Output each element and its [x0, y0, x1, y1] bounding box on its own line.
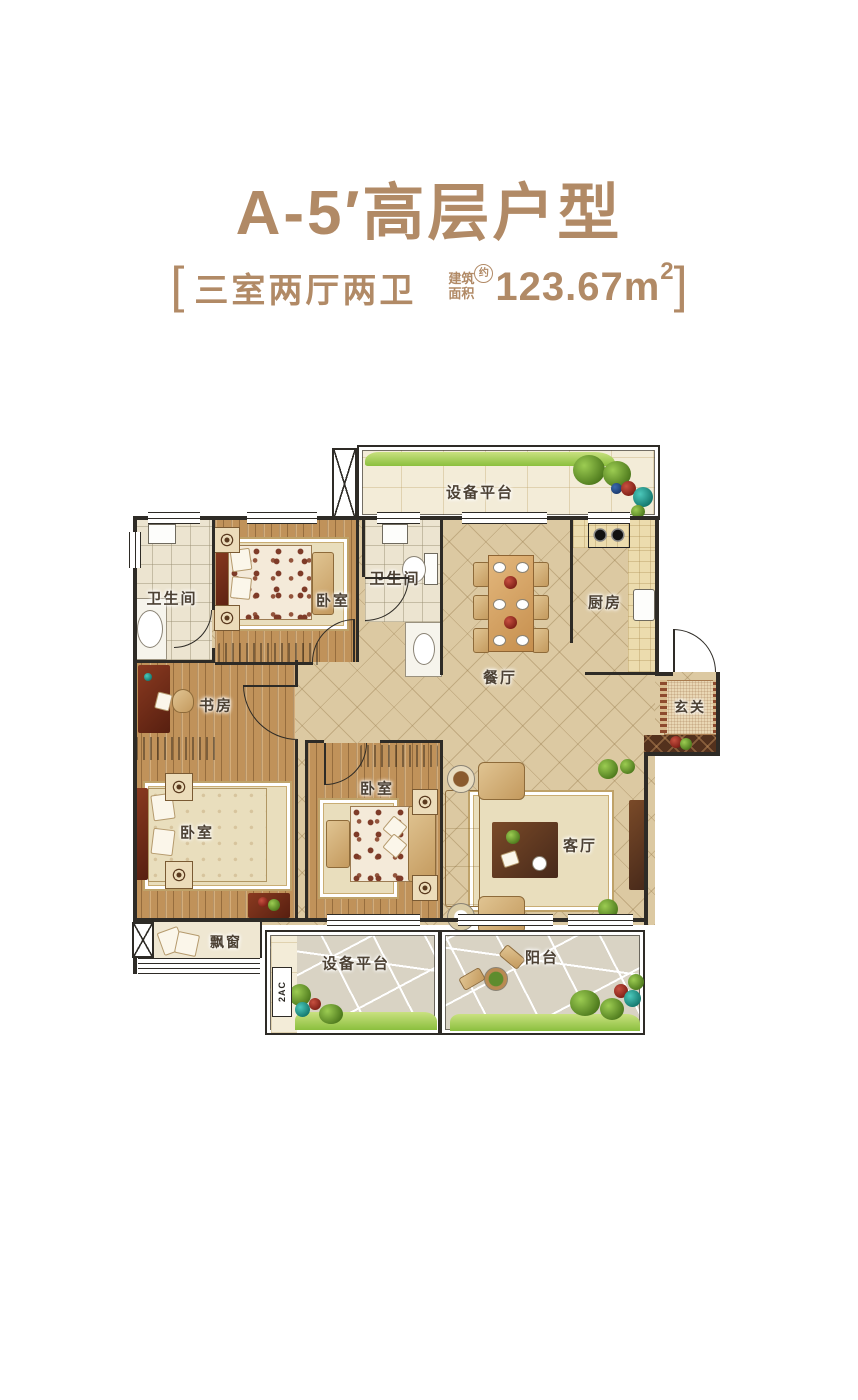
plant-pot-teal — [295, 1002, 310, 1017]
wall-bath2-right — [440, 520, 443, 675]
page: { "header": { "title": "A-5′高层户型", "acce… — [0, 0, 858, 1400]
wall-bath1-bottom — [133, 660, 212, 663]
coffee-table — [492, 822, 558, 878]
centerpiece-flowers — [504, 616, 517, 629]
corner-plant — [620, 759, 635, 774]
desk-chair — [172, 689, 194, 713]
side-table — [447, 765, 475, 793]
area-prefix-line1: 建筑 — [448, 271, 474, 286]
window-living-bottom-2 — [568, 914, 633, 926]
room-label-equip-top: 设备平台 — [446, 482, 514, 503]
pillow — [150, 828, 175, 856]
plate — [516, 562, 529, 573]
wall-entry-right — [716, 672, 720, 756]
red-flowers — [258, 897, 268, 907]
magazine — [500, 850, 520, 868]
dining-chairs-right — [532, 562, 547, 652]
balcony-chair — [458, 967, 486, 991]
plate — [493, 599, 506, 610]
wall-entry-bottom — [648, 752, 720, 756]
wall-bedmid-top-a — [305, 740, 324, 743]
room-label-bed-left: 卧室 — [180, 822, 214, 843]
plant-pot-teal — [633, 487, 653, 507]
wall-left — [133, 516, 137, 974]
dresser-bedroom-mid — [360, 745, 438, 767]
room-label-study: 书房 — [199, 695, 233, 716]
dining-chairs-left — [473, 562, 488, 652]
armchair — [478, 762, 525, 800]
room-label-bay-window: 飘窗 — [210, 932, 242, 952]
wall-entry-top-stub — [659, 672, 673, 676]
wall-kitchen-left — [570, 520, 573, 643]
room-label-entry: 玄关 — [674, 697, 706, 717]
bracket-left: [ — [170, 260, 184, 310]
ac-label: 2AC — [277, 981, 287, 1002]
centerpiece-flowers — [504, 576, 517, 589]
bench-bedroom-mid — [326, 820, 350, 868]
kitchen-sink — [633, 589, 655, 621]
plate — [493, 635, 506, 646]
basin-2 — [413, 633, 435, 665]
area-prefix-line2: 面积 — [448, 286, 474, 301]
ac-dimension-box: 2AC — [272, 967, 292, 1017]
window-living-bottom-1 — [458, 914, 553, 926]
door-arc-entry — [673, 629, 716, 672]
washer-box — [148, 524, 176, 544]
nightstand — [214, 605, 240, 631]
spec-line: [ 三室两厅两卫 建筑 面积 约 123.67m 2 ] — [0, 262, 858, 312]
tray — [532, 856, 547, 871]
planter-box — [248, 893, 290, 918]
corner-plant — [598, 759, 618, 779]
window-dining-top — [462, 512, 547, 524]
wall-bedtop-right — [356, 520, 359, 662]
bracket-right: ] — [674, 260, 688, 310]
palm-plant — [573, 455, 605, 485]
stove — [588, 522, 630, 548]
dining-table — [488, 555, 534, 652]
plate — [516, 599, 529, 610]
floor-plan: 设备平台 厨房 卫生间 卫生间 卧室 — [128, 437, 745, 1040]
plate — [516, 635, 529, 646]
headboard-mid — [408, 806, 436, 882]
pillow — [230, 576, 252, 600]
table-plant — [506, 830, 520, 844]
nightstand — [412, 789, 438, 815]
wall-bedtop-bottom — [215, 662, 313, 665]
palm-plant — [600, 998, 624, 1020]
bay-pillow — [174, 931, 200, 957]
chair — [532, 562, 549, 587]
area-value: 123.67m — [495, 265, 660, 310]
desk-lamp — [144, 673, 152, 681]
bay-window-glass — [138, 958, 260, 974]
nightstand — [165, 773, 193, 801]
wall-bath1-right-b — [212, 648, 215, 663]
grass-bottom-left — [295, 1012, 437, 1030]
page-title: A-5′高层户型 — [0, 162, 858, 252]
plant-pot-red — [309, 998, 321, 1010]
palm-plant — [319, 1004, 343, 1024]
wall-bath2-left — [362, 520, 365, 577]
nightstand — [165, 861, 193, 889]
wall-hall-study-b — [295, 740, 298, 922]
rooms-spec-text: 三室两厅两卫 — [194, 263, 416, 312]
wall-right-lower — [644, 752, 648, 925]
chair — [532, 595, 549, 620]
toilet-tank — [424, 553, 438, 585]
balcony-chair — [498, 944, 525, 970]
room-label-balcony: 阳台 — [525, 947, 559, 968]
sofa — [445, 790, 480, 907]
shaft-top — [332, 448, 357, 520]
wall-right-upper — [655, 520, 659, 676]
window-bath2-top — [377, 512, 420, 524]
plate — [493, 562, 506, 573]
shaft-bottom-left — [132, 922, 154, 958]
window-kitchen-top — [588, 512, 630, 524]
bush — [628, 974, 644, 990]
wall-bedmid-top-b — [380, 740, 440, 743]
shelf-leaves — [680, 738, 692, 750]
area-exponent: 2 — [660, 258, 673, 286]
plant-pot-teal — [624, 990, 641, 1007]
balcony-table — [484, 967, 508, 991]
window-bedtop-top — [247, 512, 317, 524]
wall-hall-study-a — [295, 660, 298, 685]
wall-bath1-right-a — [212, 520, 215, 610]
chair — [532, 628, 549, 653]
room-label-bed-top: 卧室 — [316, 590, 350, 611]
palm-plant — [570, 990, 600, 1016]
shower-box — [382, 524, 408, 544]
room-label-kitchen: 厨房 — [588, 592, 622, 613]
nightstand — [214, 527, 240, 553]
room-label-bed-mid: 卧室 — [360, 778, 394, 799]
mat-fringe-left — [660, 680, 667, 733]
basin-1 — [137, 610, 163, 648]
approx-badge: 约 — [474, 264, 493, 283]
window-bath1-top — [148, 512, 200, 524]
room-label-bath1: 卫生间 — [146, 588, 197, 609]
flower-leaves — [268, 899, 280, 911]
window-bedmid-bottom — [327, 914, 420, 926]
room-label-equip-bottom: 设备平台 — [322, 953, 390, 974]
wall-bedmid-right — [440, 740, 443, 922]
desk-study — [138, 665, 170, 733]
window-bath1-left — [129, 532, 141, 568]
wall-kitchen-bottom — [585, 672, 659, 675]
nightstand — [412, 875, 438, 901]
area-prefix: 建筑 面积 — [448, 272, 474, 302]
room-label-living: 客厅 — [563, 835, 597, 856]
bench-study — [136, 737, 218, 760]
room-label-dining: 餐厅 — [483, 667, 517, 688]
wall-bedmid-left — [305, 740, 308, 922]
